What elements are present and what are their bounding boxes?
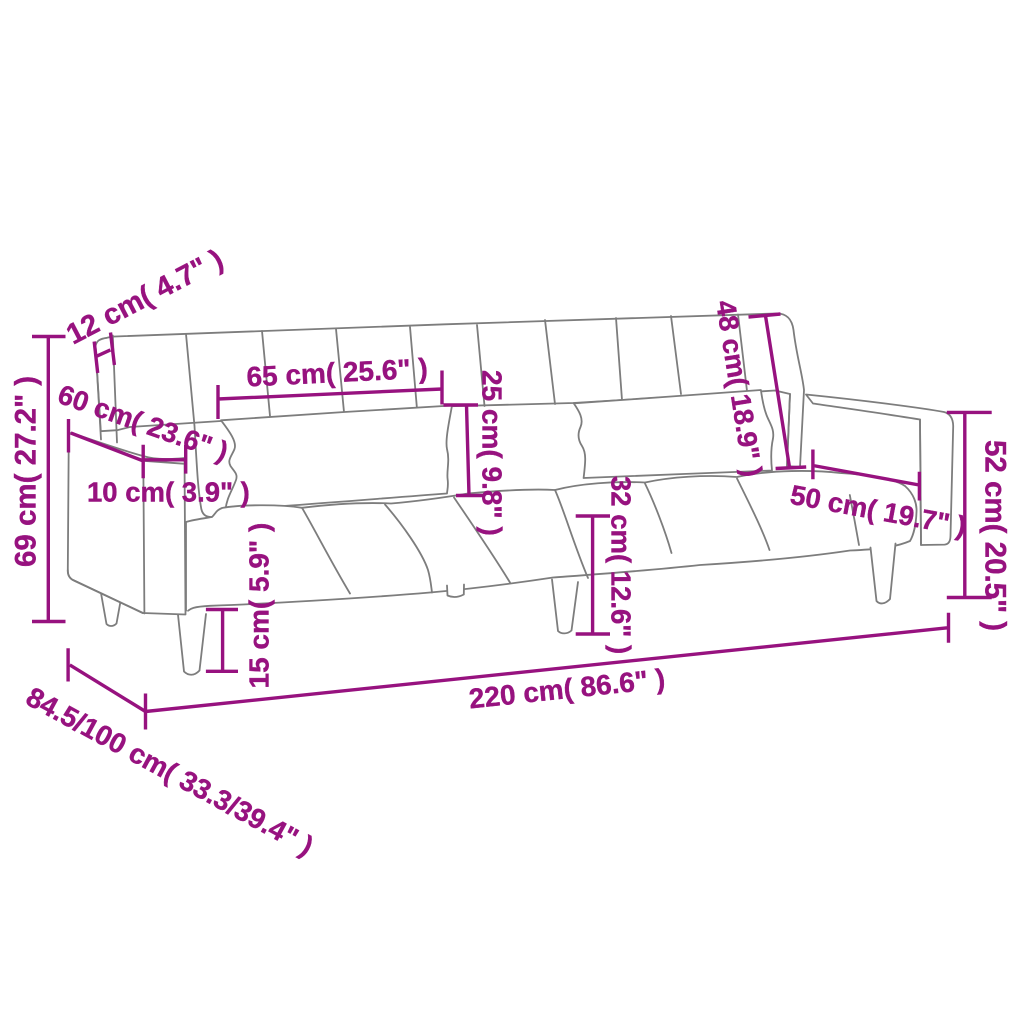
svg-text:25 cm( 9.8" ): 25 cm( 9.8" ) [477,370,508,536]
svg-text:52 cm( 20.5" ): 52 cm( 20.5" ) [979,440,1012,631]
svg-text:10 cm( 3.9" ): 10 cm( 3.9" ) [87,477,250,508]
svg-text:69 cm( 27.2" ): 69 cm( 27.2" ) [10,376,43,567]
svg-text:15 cm( 5.9" ): 15 cm( 5.9" ) [244,523,275,689]
svg-text:32 cm( 12.6" ): 32 cm( 12.6" ) [606,476,637,654]
